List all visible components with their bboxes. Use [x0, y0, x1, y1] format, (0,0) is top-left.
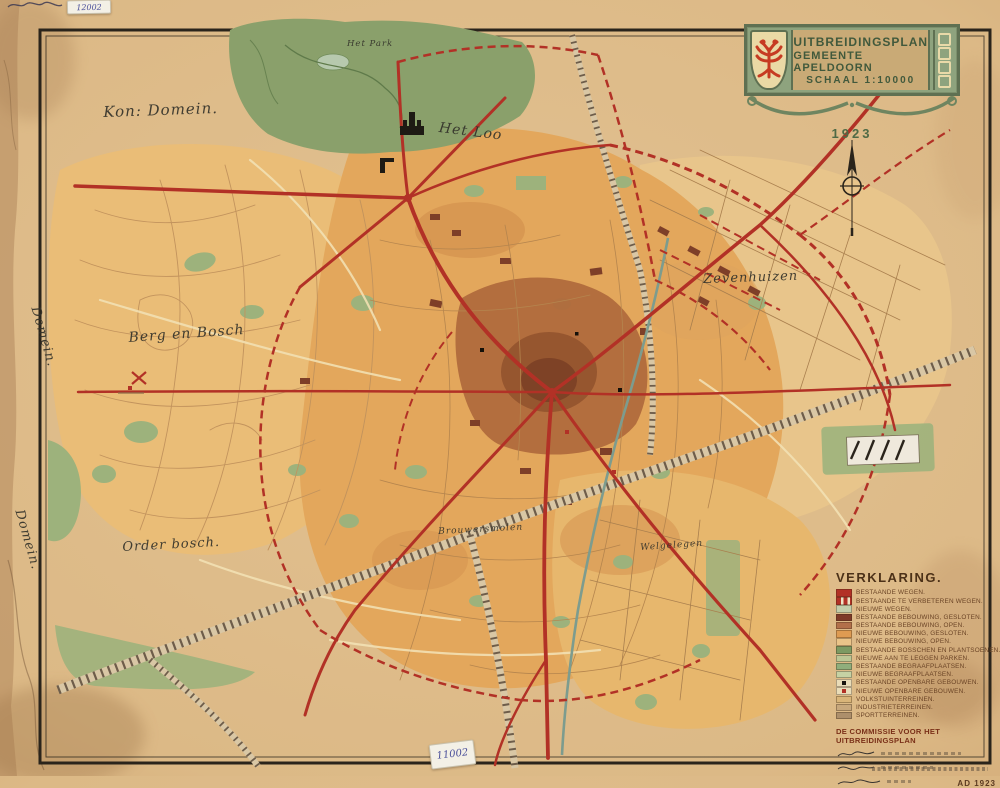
legend-row: Bestaande bosschen en plantsoenen.	[836, 646, 996, 654]
legend-label: Industrieterreinen.	[856, 704, 933, 711]
archive-sticker-top: 12002	[67, 0, 111, 14]
legend-label: Nieuwe wegen.	[856, 606, 912, 613]
legend-chip	[836, 622, 852, 630]
legend-row: Nieuwe wegen.	[836, 605, 996, 613]
legend-row: Bestaande wegen.	[836, 589, 996, 597]
legend-rows: Bestaande wegen.Bestaande te verbeteren …	[836, 589, 996, 720]
scanned-map-sheet: { "cartouche": { "title_line1": "UITBREI…	[0, 0, 1000, 776]
ornament-ring-icon	[938, 75, 951, 88]
commission-heading: DE COMMISSIE VOOR HET UITBREIDINGSPLAN	[836, 727, 996, 745]
legend-label: Nieuwe bebouwing, open.	[856, 638, 951, 645]
legend-chip	[836, 704, 852, 712]
legend-row: Bestaande begraafplaatsen.	[836, 663, 996, 671]
legend-panel: VERKLARING. Bestaande wegen.Bestaande te…	[836, 570, 996, 788]
legend-chip	[836, 605, 852, 613]
commission-block: DE COMMISSIE VOOR HET UITBREIDINGSPLAN A…	[836, 727, 996, 788]
legend-label: Sportterreinen.	[856, 712, 920, 719]
red-square-icon	[842, 689, 846, 693]
annotation-marks	[847, 435, 920, 465]
signature	[836, 763, 876, 773]
ornament-ring-icon	[938, 61, 951, 74]
legend-label: Bestaande openbare gebouwen.	[856, 679, 979, 686]
ornament-ring-icon	[938, 33, 951, 46]
archive-number-bottom: 11002	[436, 747, 469, 762]
legend-chip	[836, 679, 852, 687]
map-title-line1: UITBREIDINGSPLAN	[793, 35, 928, 49]
legend-label: Bestaande bebouwing, open.	[856, 622, 964, 629]
legend-row: Bestaande openbare gebouwen.	[836, 679, 996, 687]
legend-chip	[836, 638, 852, 646]
cartouche-ornament-column	[933, 30, 954, 90]
map-year: 1923	[744, 126, 960, 141]
archive-number-top: 12002	[76, 2, 102, 11]
legend-row: Nieuwe openbare gebouwen.	[836, 687, 996, 695]
black-square-icon	[842, 681, 846, 685]
legend-row: Bestaande bebouwing, open.	[836, 622, 996, 630]
legend-chip	[836, 597, 852, 605]
legend-chip	[836, 646, 852, 654]
legend-label: Volkstuinterreinen.	[856, 696, 935, 703]
legend-label: Nieuwe aan te leggen parken.	[856, 655, 969, 662]
legend-chip	[836, 687, 852, 695]
legend-chip	[836, 671, 852, 679]
legend-row: Nieuwe bebouwing, open.	[836, 638, 996, 646]
signature	[836, 749, 876, 759]
legend-row: Sportterreinen.	[836, 712, 996, 720]
legend-row: Nieuwe aan te leggen parken.	[836, 655, 996, 663]
signature-note	[881, 752, 961, 755]
apeldoorn-double-eagle-icon	[754, 37, 784, 83]
signature-row	[836, 749, 996, 759]
legend-label: Bestaande begraafplaatsen.	[856, 663, 966, 670]
legend-label: Nieuwe bebouwing, gesloten.	[856, 630, 969, 637]
title-cartouche: UITBREIDINGSPLAN GEMEENTE APELDOORN SCHA…	[744, 24, 960, 141]
printer-credit-smudge	[872, 767, 988, 771]
legend-label: Bestaande bebouwing, gesloten.	[856, 614, 982, 621]
map-title-line3: SCHAAL 1:10000	[806, 75, 915, 86]
coat-of-arms	[750, 30, 788, 90]
legend-label: Nieuwe openbare gebouwen.	[856, 688, 965, 695]
legend-label: Bestaande wegen.	[856, 589, 925, 596]
signature-note	[887, 780, 911, 783]
legend-chip	[836, 630, 852, 638]
legend-row: Nieuwe bebouwing, gesloten.	[836, 630, 996, 638]
legend-row: Bestaande te verbeteren wegen.	[836, 597, 996, 605]
cartouche-swag	[744, 96, 960, 126]
signature	[836, 777, 882, 787]
legend-row: Industrieterreinen.	[836, 704, 996, 712]
legend-chip	[836, 663, 852, 671]
legend-chip	[836, 712, 852, 720]
legend-chip	[836, 614, 852, 622]
label-het-park: Het Park	[347, 39, 393, 49]
map-title-line2: GEMEENTE APELDOORN	[793, 50, 928, 74]
ornament-ring-icon	[938, 47, 951, 60]
legend-label: Bestaande te verbeteren wegen.	[856, 598, 983, 605]
legend-row: Bestaande bebouwing, gesloten.	[836, 614, 996, 622]
legend-chip	[836, 589, 852, 597]
cartouche-panel: UITBREIDINGSPLAN GEMEENTE APELDOORN SCHA…	[744, 24, 960, 96]
legend-label: Bestaande bosschen en plantsoenen.	[856, 647, 1000, 654]
title-band: UITBREIDINGSPLAN GEMEENTE APELDOORN SCHA…	[791, 30, 930, 90]
legend-row: Volkstuinterreinen.	[836, 695, 996, 703]
legend-label: Nieuwe begraafplaatsen.	[856, 671, 953, 678]
legend-chip	[836, 655, 852, 663]
legend-title: VERKLARING.	[836, 570, 996, 585]
legend-chip	[836, 696, 852, 704]
legend-row: Nieuwe begraafplaatsen.	[836, 671, 996, 679]
